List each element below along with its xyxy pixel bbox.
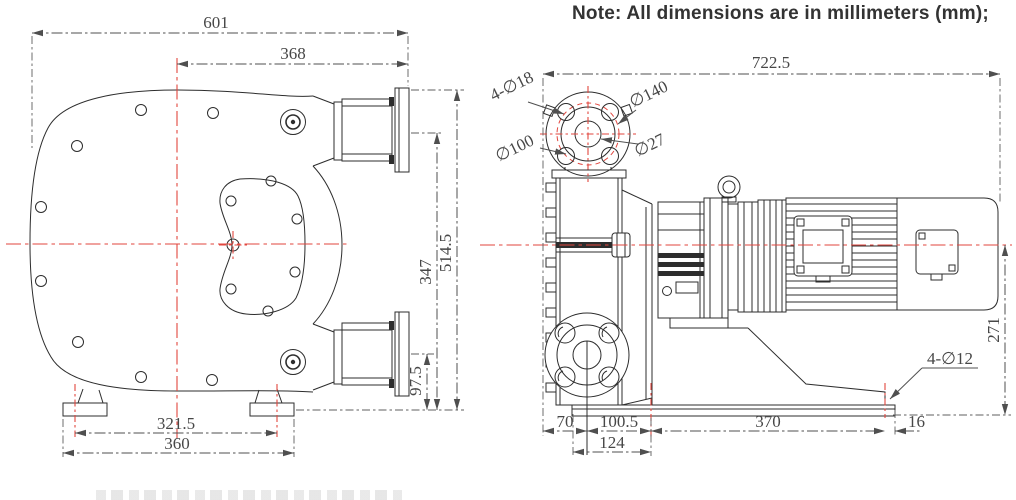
dim-overall-length: 722.5	[752, 53, 790, 72]
gearbox	[658, 198, 758, 328]
motor	[758, 198, 998, 312]
side-view: 4-∅18 ∅140 ∅100 ∅27	[480, 53, 1012, 456]
dim-foot-hole-spacing: 321.5	[157, 414, 195, 433]
label-flange-outer-dia: ∅140	[626, 77, 671, 112]
dim-lower-port-height: 97.5	[406, 366, 425, 396]
junction-box	[916, 230, 958, 274]
dim-base-width: 360	[164, 434, 190, 453]
label-flange-bore: ∅27	[631, 129, 668, 160]
dim-foot-hole-pitch: 370	[755, 412, 781, 431]
dim-base-offset-right: 16	[908, 412, 925, 431]
technical-drawing-page: Note: All dimensions are in millimeters …	[0, 0, 1016, 500]
dim-shaft-center-height: 271	[984, 317, 1003, 343]
dim-flange-to-foot: 100.5	[600, 412, 638, 431]
top-flange-detail	[540, 86, 636, 182]
label-flange-bolt-holes: 4-∅18	[487, 67, 537, 104]
dim-overall-width: 601	[203, 13, 229, 32]
casing-bolt-holes	[36, 105, 219, 386]
pump-casing-front	[30, 90, 342, 392]
dim-foot-plate-width: 124	[599, 433, 625, 452]
inner-cover-plate	[219, 176, 305, 316]
front-feet	[63, 389, 294, 416]
upper-port	[281, 88, 410, 172]
dim-overall-height: 514.5	[436, 234, 455, 272]
dim-center-to-flange: 368	[280, 44, 306, 63]
front-centerlines	[6, 58, 348, 438]
pump-drawing-svg: 601 368 97.5 347 514.5 321.5 360	[0, 0, 1016, 500]
dim-upper-port-height: 347	[416, 259, 435, 285]
front-view: 601 368 97.5 347 514.5 321.5 360	[6, 13, 464, 457]
label-flange-bolt-circle: ∅100	[492, 131, 537, 166]
terminal-box	[794, 216, 852, 282]
label-base-holes: 4-∅12	[927, 349, 973, 368]
dim-base-offset-left: 70	[557, 412, 574, 431]
motor-end-cap	[897, 198, 998, 310]
cropped-text-artifact	[96, 490, 402, 500]
lower-port	[281, 312, 410, 396]
